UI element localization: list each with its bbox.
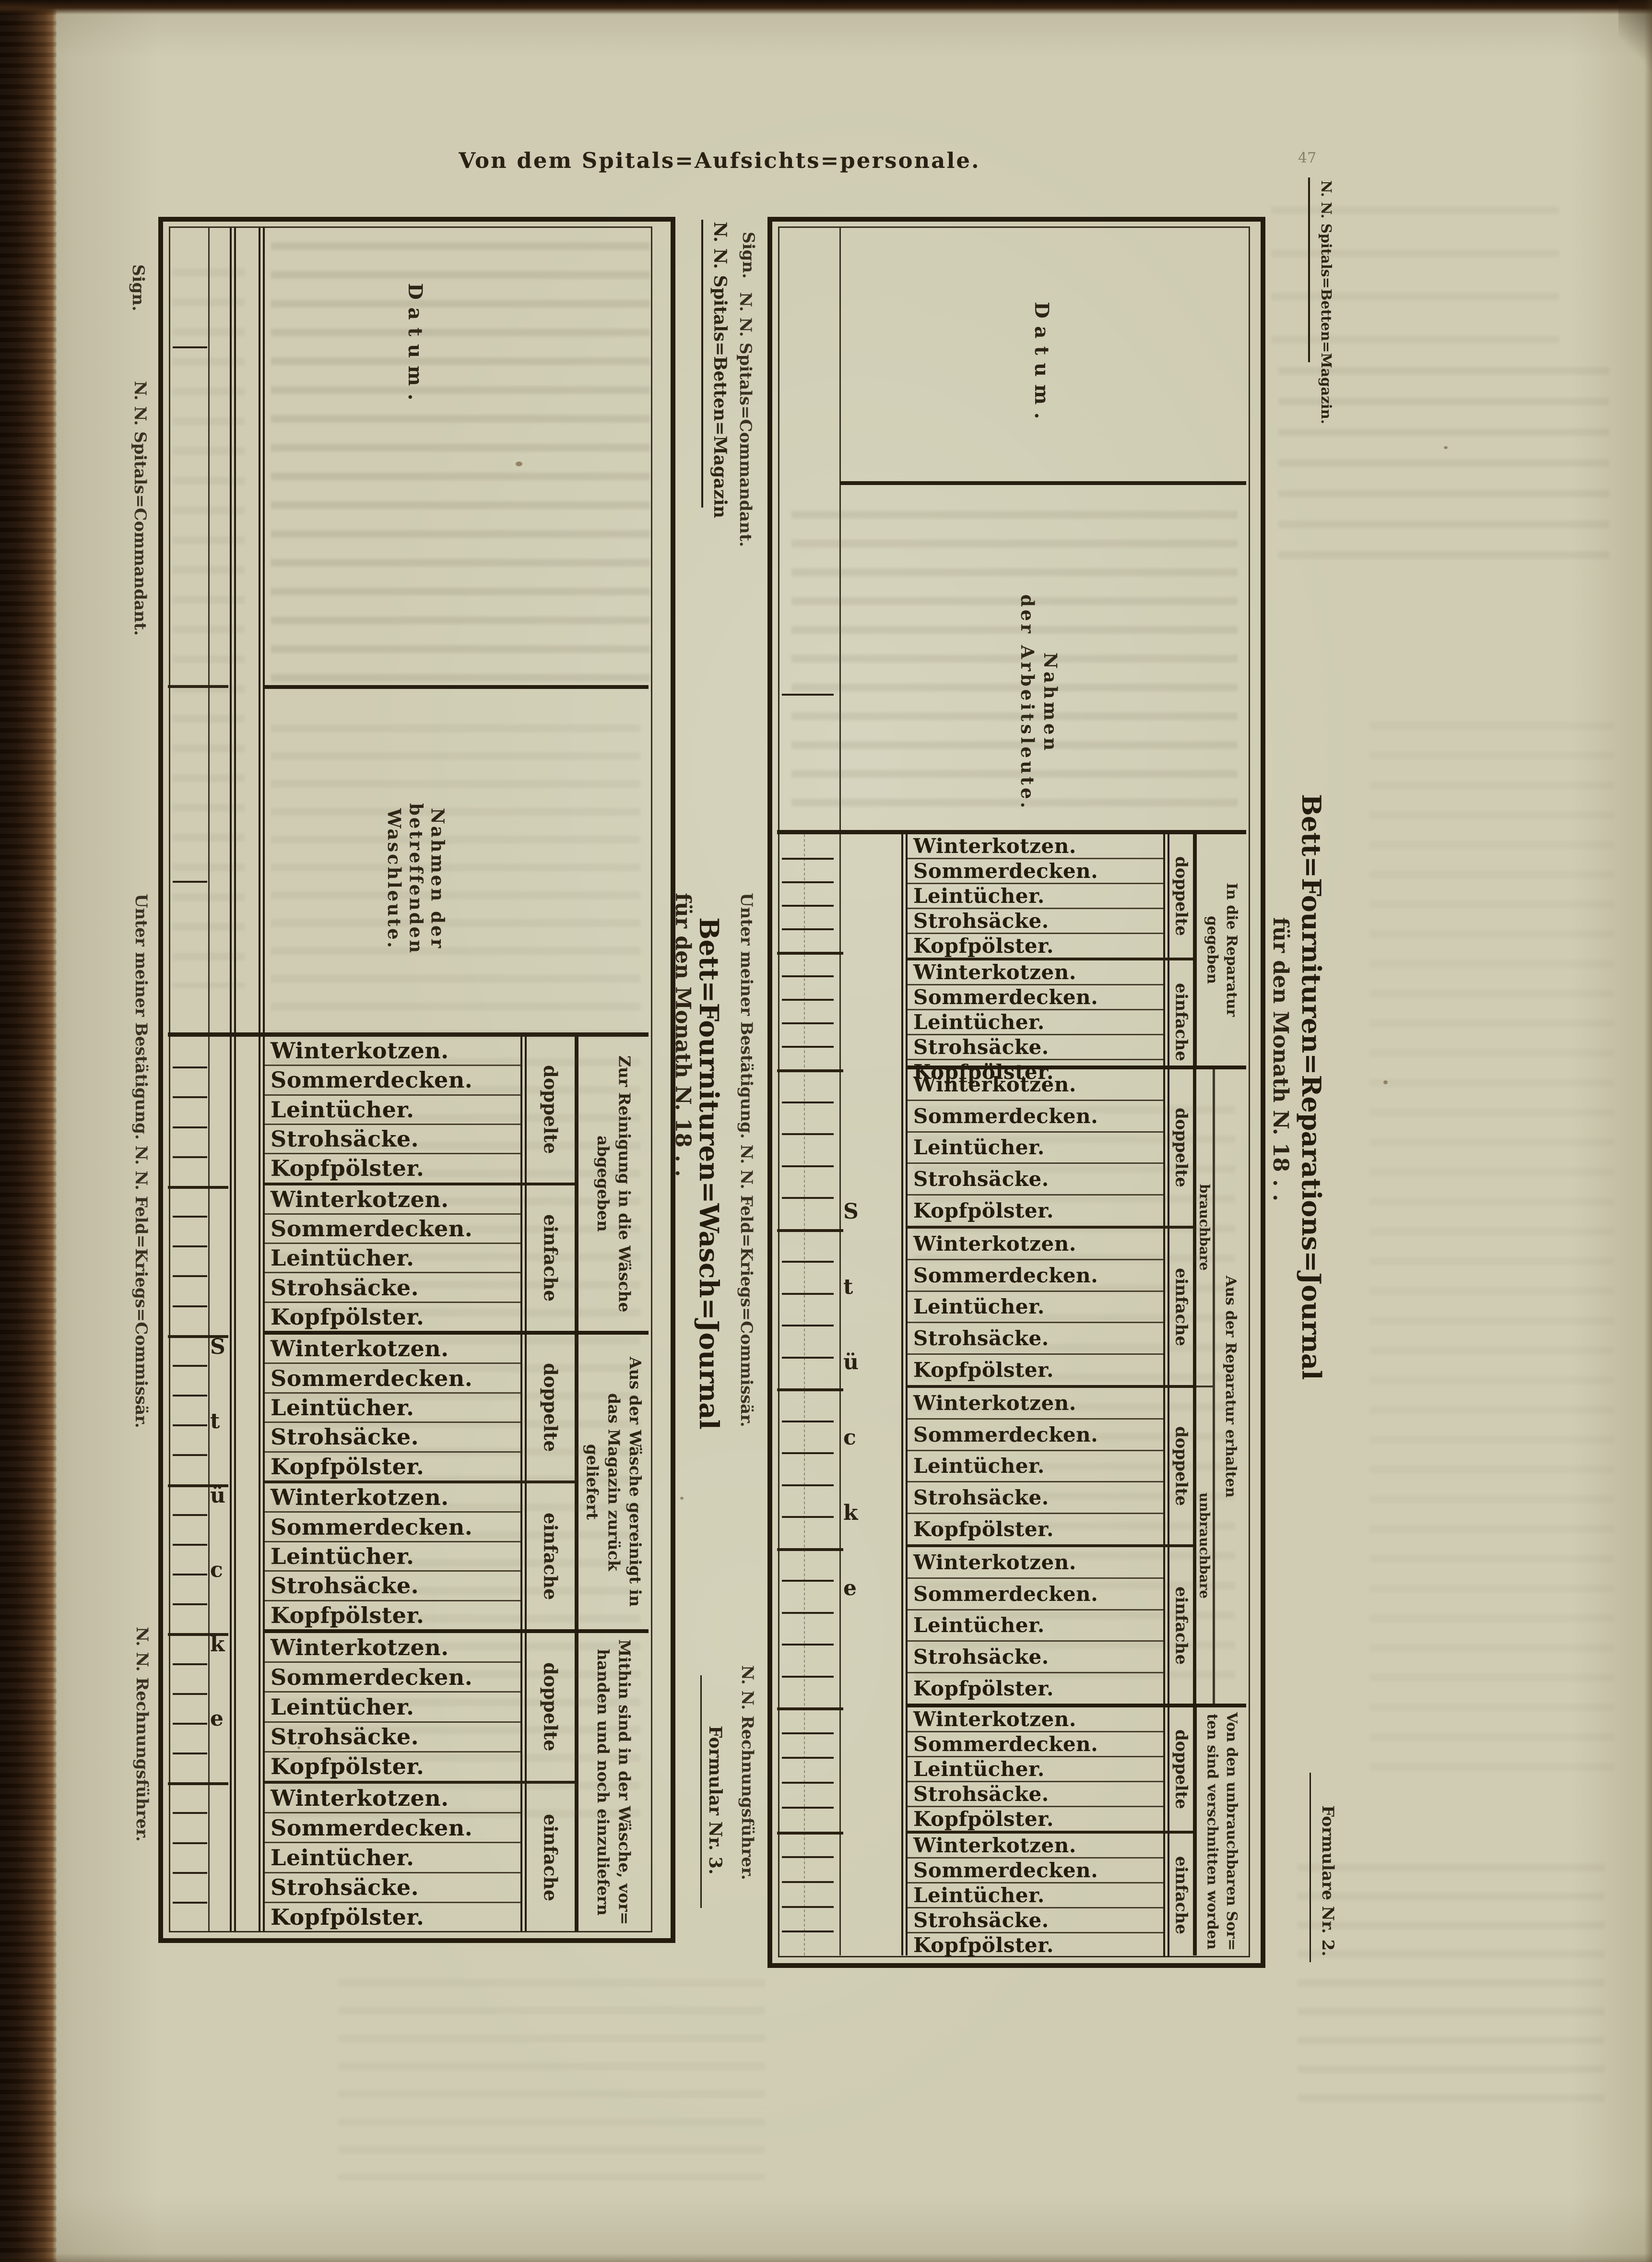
section-title-label: Aus der Reparatur erhalten: [1222, 1276, 1239, 1498]
item-row: Winterkotzen.: [908, 1229, 1163, 1260]
entry-line-dash: [782, 1325, 834, 1326]
group-type-cell: doppelte: [1163, 1069, 1193, 1226]
entry-line-dash: [782, 1676, 834, 1678]
item-label: Strohsäcke.: [271, 1275, 419, 1301]
item-row: Strohsäcke.: [908, 1164, 1163, 1196]
item-row: Leintücher.: [265, 1542, 520, 1572]
item-row: Kopfpölster.: [265, 1154, 520, 1182]
item-row: Strohsäcke.: [908, 909, 1163, 934]
item-label: Strohsäcke.: [913, 1326, 1049, 1350]
entry-line-dash: [777, 1069, 843, 1072]
group-type-label: einfache: [1172, 983, 1191, 1061]
entry-line-dash: [782, 1856, 834, 1858]
repair-journal-title: Bett=Fournituren=Reparations=Journal: [1296, 679, 1327, 1495]
item-label: Leintücher.: [913, 1757, 1045, 1781]
entry-line-dash: [168, 1782, 228, 1785]
item-label: Strohsäcke.: [913, 1782, 1049, 1806]
entry-line-dash: [777, 1832, 843, 1835]
item-label: Winterkotzen.: [271, 1785, 449, 1811]
entry-line-dash: [782, 1421, 834, 1422]
item-row: Kopfpölster.: [908, 1933, 1163, 1957]
entry-line-dash: [777, 1229, 843, 1232]
item-label: Leintücher.: [913, 1136, 1045, 1159]
entry-line-dash: [782, 1516, 834, 1518]
section-title-cell: Aus der Reparatur erhalten: [1213, 1069, 1246, 1704]
entry-line-dash: [173, 1753, 207, 1754]
repair-journal-section-0: Winterkotzen.Sommerdecken.Leintücher.Str…: [908, 834, 1246, 1069]
group-type-label: einfache: [1172, 1856, 1191, 1934]
item-label: Winterkotzen.: [913, 1707, 1076, 1731]
item-label: Kopfpölster.: [913, 934, 1054, 958]
group-type-label: doppelte: [1172, 856, 1191, 936]
paper-fleck-0: [516, 462, 522, 466]
wash-journal-names-header: Nahmen derbetreffendenWaschleute.: [383, 743, 448, 1015]
group-type-label: doppelte: [1172, 1729, 1191, 1809]
repair-journal-group-2-0-rows: Winterkotzen.Sommerdecken.Leintücher.Str…: [908, 1707, 1163, 1831]
section-title-line-2: geliefert: [581, 1357, 603, 1607]
item-label: Sommerdecken.: [271, 1514, 472, 1540]
section-title-line-1: abgegeben: [592, 1055, 614, 1312]
item-row: Sommerdecken.: [908, 1579, 1163, 1611]
item-label: Strohsäcke.: [913, 1645, 1049, 1669]
entry-line-dash: [782, 1930, 834, 1932]
item-row: Sommerdecken.: [908, 985, 1163, 1010]
item-label: Sommerdecken.: [913, 1859, 1098, 1882]
item-label: Strohsäcke.: [271, 1724, 419, 1750]
entry-line-dash: [173, 1842, 207, 1844]
group-type-label: doppelte: [1172, 1426, 1191, 1506]
item-label: Sommerdecken.: [913, 1423, 1098, 1446]
entry-line-dash: [173, 1723, 207, 1725]
entry-line-dash: [782, 1293, 834, 1295]
paper-fleck-3: [297, 1746, 300, 1749]
repair-journal-form-number: Formulare Nr. 2.: [1318, 1788, 1337, 1973]
repair-journal-group-2-1-rows: Winterkotzen.Sommerdecken.Leintücher.Str…: [908, 1834, 1163, 1957]
bleedthrough-patch-7: [338, 1979, 765, 2180]
wash-journal-group-2-1-rows: Winterkotzen.Sommerdecken.Leintücher.Str…: [265, 1784, 520, 1931]
section-title-line-1: handen und noch einzuliefern: [592, 1639, 614, 1925]
item-label: Winterkotzen.: [913, 834, 1076, 858]
stueck-letter-4: k: [843, 1501, 858, 1525]
stueck-letter-1: t: [843, 1275, 853, 1299]
item-label: Kopfpölster.: [271, 1155, 424, 1181]
item-row: Winterkotzen.: [908, 1707, 1163, 1732]
item-label: Kopfpölster.: [271, 1602, 424, 1628]
entry-line-dash: [173, 1305, 207, 1307]
wash-journal-names-line-0: Nahmen der: [426, 743, 448, 1015]
item-label: Winterkotzen.: [271, 1634, 449, 1660]
entry-line-dash: [173, 1365, 207, 1367]
entry-line-dash: [782, 1807, 834, 1809]
wash-journal-section-1-header: Aus der Wäsche gereinigt indas Magazin z…: [575, 1335, 649, 1629]
wash-journal-group-2-0: Winterkotzen.Sommerdecken.Leintücher.Str…: [265, 1633, 575, 1784]
wash-journal-section-1: Winterkotzen.Sommerdecken.Leintücher.Str…: [265, 1335, 649, 1633]
entry-line-dash: [782, 1261, 834, 1263]
entry-line-dash: [173, 1872, 207, 1874]
entry-line-dash: [173, 1693, 207, 1695]
group-type-label: einfache: [1172, 1268, 1191, 1346]
item-label: Sommerdecken.: [271, 1216, 472, 1242]
item-row: Winterkotzen.: [908, 834, 1163, 859]
item-row: Sommerdecken.: [265, 1663, 520, 1693]
item-row: Strohsäcke.: [908, 1323, 1163, 1355]
entry-line-dash: [777, 952, 843, 955]
item-label: Sommerdecken.: [913, 859, 1098, 883]
repair-journal-group-1-1: Winterkotzen.Sommerdecken.Leintücher.Str…: [908, 1229, 1193, 1388]
item-label: Kopfpölster.: [913, 1517, 1054, 1541]
item-label: Winterkotzen.: [913, 1232, 1076, 1255]
item-row: Winterkotzen.: [265, 1633, 520, 1663]
item-label: Strohsäcke.: [913, 1167, 1049, 1191]
entry-line-dash: [777, 1707, 843, 1710]
group-type-cell: einfache: [1163, 1547, 1193, 1704]
item-label: Strohsäcke.: [271, 1424, 419, 1450]
wash-journal-section-0: Winterkotzen.Sommerdecken.Leintücher.Str…: [265, 1037, 649, 1335]
item-row: Kopfpölster.: [908, 1673, 1163, 1704]
wash-journal-band-divider-0: [265, 685, 649, 689]
item-label: Kopfpölster.: [913, 1933, 1054, 1957]
entry-line-dash: [173, 1574, 207, 1575]
bleedthrough-patch-9: [1271, 206, 1559, 350]
item-label: Kopfpölster.: [271, 1904, 424, 1930]
item-label: Sommerdecken.: [271, 1815, 472, 1841]
group-type-label: einfache: [540, 1513, 562, 1600]
item-label: Kopfpölster.: [913, 1199, 1054, 1222]
stueck-letter-5: e: [843, 1576, 857, 1600]
wash-journal-group-1-0: Winterkotzen.Sommerdecken.Leintücher.Str…: [265, 1335, 575, 1483]
item-row: Leintücher.: [265, 1693, 520, 1722]
item-row: Winterkotzen.: [265, 1784, 520, 1813]
entry-line-dash: [782, 1357, 834, 1359]
section-title-line-0: Aus der Wäsche gereinigt in: [624, 1357, 646, 1607]
entry-line-dash: [173, 1424, 207, 1426]
page-bottom-edge: [0, 2253, 1652, 2262]
entry-line-dash: [173, 1454, 207, 1456]
item-row: Leintücher.: [908, 1757, 1163, 1782]
bleedthrough-patch-8: [1369, 722, 1614, 1777]
entry-line-dash: [782, 1165, 834, 1167]
entry-line-dash: [782, 1484, 834, 1486]
section-title-line-1: gegeben: [1202, 883, 1222, 1017]
item-label: Leintücher.: [913, 1883, 1045, 1907]
entry-line-dash: [782, 1732, 834, 1734]
wash-journal-group-2-0-rows: Winterkotzen.Sommerdecken.Leintücher.Str…: [265, 1633, 520, 1781]
entry-line-dash: [782, 1612, 834, 1614]
repair-journal-signature-sign-label: Sign.: [739, 232, 758, 277]
item-label: Strohsäcke.: [271, 1874, 419, 1900]
item-row: Strohsäcke.: [908, 1782, 1163, 1807]
item-label: Leintücher.: [913, 1454, 1045, 1478]
group-type-cell: doppelte: [520, 1633, 575, 1781]
entry-line-dash: [173, 1156, 207, 1158]
wash-journal-section-2-header: Mithin sind in der Wäsche, vor=handen un…: [575, 1633, 649, 1931]
repair-journal-group-0-1-rows: Winterkotzen.Sommerdecken.Leintücher.Str…: [908, 960, 1163, 1084]
repair-journal-signature-commandant: N. N. Spitals=Commandant.: [736, 276, 755, 564]
repair-journal-group-1-0-rows: Winterkotzen.Sommerdecken.Leintücher.Str…: [908, 1069, 1163, 1226]
item-row: Sommerdecken.: [265, 1215, 520, 1244]
item-row: Kopfpölster.: [908, 1807, 1163, 1831]
group-type-label: doppelte: [540, 1065, 562, 1154]
repair-journal-group-2-0: Winterkotzen.Sommerdecken.Leintücher.Str…: [908, 1707, 1193, 1834]
group-type-cell: einfache: [520, 1784, 575, 1931]
subsection-label: unbrauchbare: [1197, 1492, 1213, 1599]
entry-line-dash: [168, 1186, 228, 1189]
entry-line-dash: [173, 1812, 207, 1814]
item-label: Winterkotzen.: [271, 1186, 449, 1212]
group-type-cell: doppelte: [1163, 834, 1193, 958]
book-page: Von dem Spitals=Aufsichts=personale. 47 …: [0, 0, 1652, 2262]
item-row: Leintücher.: [908, 1010, 1163, 1035]
section-title: Aus der Wäsche gereinigt indas Magazin z…: [581, 1357, 646, 1607]
item-row: Winterkotzen.: [908, 1547, 1163, 1579]
repair-journal-group-0-0-rows: Winterkotzen.Sommerdecken.Leintücher.Str…: [908, 834, 1163, 958]
repair-journal-section-1: Winterkotzen.Sommerdecken.Leintücher.Str…: [908, 1069, 1246, 1707]
item-row: Winterkotzen.: [265, 1483, 520, 1513]
repair-journal-group-0-1: Winterkotzen.Sommerdecken.Leintücher.Str…: [908, 960, 1193, 1084]
page-top-edge: [0, 0, 1652, 14]
wash-journal-datum-header: Datum.: [404, 283, 426, 359]
entry-line-dash: [173, 346, 207, 348]
wash-journal-group-0-0: Winterkotzen.Sommerdecken.Leintücher.Str…: [265, 1037, 575, 1185]
entry-line-dash: [173, 1395, 207, 1397]
stueck-letter-4: k: [210, 1632, 225, 1657]
item-label: Sommerdecken.: [271, 1664, 472, 1690]
entry-line-dash: [782, 1580, 834, 1582]
wash-journal-group-2-1: Winterkotzen.Sommerdecken.Leintücher.Str…: [265, 1784, 575, 1931]
item-row: Leintücher.: [265, 1096, 520, 1125]
repair-journal-section-1-subheaders: brauchbareunbrauchbare: [1196, 1069, 1213, 1704]
wash-journal-signature-commandant: N. N. Spitals=Commandant.: [130, 367, 150, 650]
group-type-cell: doppelte: [520, 1037, 575, 1183]
entry-line-dash: [782, 1906, 834, 1908]
item-row: Sommerdecken.: [908, 1260, 1163, 1292]
item-row: Sommerdecken.: [908, 859, 1163, 884]
entry-line-dash: [782, 975, 834, 977]
item-label: Leintücher.: [913, 1295, 1045, 1318]
wash-journal-letterhead: N. N. Spitals=Betten=Magazin: [710, 222, 730, 507]
item-label: Winterkotzen.: [913, 1551, 1076, 1574]
subsection-cell: brauchbare: [1196, 1069, 1213, 1387]
repair-journal-group-1-2: Winterkotzen.Sommerdecken.Leintücher.Str…: [908, 1388, 1193, 1547]
wash-journal-signature-sign-label: Sign.: [129, 259, 148, 317]
stueck-letter-1: t: [210, 1409, 220, 1433]
item-row: Leintücher.: [908, 1883, 1163, 1908]
repair-journal-group-1-3: Winterkotzen.Sommerdecken.Leintücher.Str…: [908, 1547, 1193, 1704]
group-type-label: einfache: [540, 1214, 562, 1302]
item-row: Kopfpölster.: [908, 1355, 1163, 1385]
wash-journal-subtitle: für den Monath N. 18 . .: [671, 828, 695, 1243]
entry-line-dash: [782, 694, 834, 696]
item-row: Sommerdecken.: [265, 1813, 520, 1843]
item-row: Strohsäcke.: [265, 1572, 520, 1601]
item-label: Leintücher.: [271, 1395, 414, 1421]
section-title: In die Reparaturgegeben: [1202, 883, 1241, 1017]
item-label: Strohsäcke.: [271, 1573, 419, 1599]
repair-journal-formnumber-rule: [1310, 1773, 1311, 1962]
group-type-cell: einfache: [520, 1185, 575, 1331]
item-row: Strohsäcke.: [265, 1873, 520, 1903]
entry-line-dash: [173, 1245, 207, 1247]
item-label: Sommerdecken.: [913, 1732, 1098, 1756]
repair-journal-datum-header: Datum.: [1030, 300, 1053, 428]
wash-journal-letterhead-rule: [701, 220, 703, 508]
item-label: Kopfpölster.: [913, 1677, 1054, 1700]
stueck-letter-0: S: [210, 1335, 225, 1359]
repair-journal-section-2-header: Von den unbrauchbaren Sor=ten sind versc…: [1193, 1707, 1246, 1955]
item-row: Sommerdecken.: [908, 1420, 1163, 1451]
item-row: Leintücher.: [265, 1843, 520, 1873]
section-title-line-0: Zur Reinigung in die Wäsche: [614, 1055, 635, 1312]
item-row: Kopfpölster.: [265, 1601, 520, 1629]
wash-journal-column-divider-0: [208, 228, 210, 1931]
wash-journal-section-2-groups: Winterkotzen.Sommerdecken.Leintücher.Str…: [265, 1633, 575, 1931]
repair-journal-band-divider-0: [840, 481, 1246, 485]
item-row: Kopfpölster.: [265, 1453, 520, 1480]
section-title: Zur Reinigung in die Wäscheabgegeben: [592, 1055, 635, 1312]
item-label: Kopfpölster.: [913, 1807, 1054, 1831]
item-row: Sommerdecken.: [908, 1732, 1163, 1757]
item-label: Leintücher.: [271, 1245, 414, 1271]
repair-journal-band-divider-1: [777, 830, 1246, 834]
wash-journal-signature-commissar: Unter meiner Bestätigung. N. N. Feld=Kri…: [131, 736, 151, 1586]
repair-journal-subtitle: für den Monath N. 18 . .: [1268, 839, 1293, 1280]
item-row: Leintücher.: [908, 1133, 1163, 1164]
item-row: Winterkotzen.: [265, 1185, 520, 1215]
repair-journal-letterhead: N. N. Spitals=Betten=Magazin.: [1318, 180, 1334, 361]
entry-line-dash: [782, 1046, 834, 1048]
item-label: Sommerdecken.: [913, 1264, 1098, 1287]
item-row: Winterkotzen.: [265, 1037, 520, 1066]
repair-journal-group-2-1: Winterkotzen.Sommerdecken.Leintücher.Str…: [908, 1834, 1193, 1957]
entry-line-dash: [782, 905, 834, 907]
entry-line-dash: [782, 1197, 834, 1199]
repair-journal-section-0-header: In die Reparaturgegeben: [1193, 834, 1246, 1066]
entry-line-dash: [173, 1902, 207, 1904]
wash-journal-title: Bett=Fournituren=Wasch=Journal: [694, 810, 725, 1537]
repair-journal-section-0-groups: Winterkotzen.Sommerdecken.Leintücher.Str…: [908, 834, 1193, 1066]
group-type-label: einfache: [1172, 1587, 1191, 1665]
group-type-cell: einfache: [1163, 1229, 1193, 1385]
item-row: Leintücher.: [265, 1244, 520, 1273]
wash-journal-group-0-1-rows: Winterkotzen.Sommerdecken.Leintücher.Str…: [265, 1185, 520, 1331]
item-label: Strohsäcke.: [913, 1908, 1049, 1932]
repair-journal-column-divider-1: [839, 228, 841, 1955]
wash-journal-column-divider-1: [230, 228, 236, 1931]
repair-journal-letterhead-rule: [1308, 178, 1310, 362]
item-row: Sommerdecken.: [908, 1859, 1163, 1883]
section-title-line-0: Von den unbrauchbaren Sor=: [1222, 1712, 1241, 1951]
group-type-label: einfache: [540, 1814, 562, 1901]
item-row: Strohsäcke.: [908, 1908, 1163, 1933]
item-label: Strohsäcke.: [913, 1035, 1049, 1059]
repair-journal-group-1-1-rows: Winterkotzen.Sommerdecken.Leintücher.Str…: [908, 1229, 1163, 1385]
item-row: Winterkotzen.: [908, 1388, 1163, 1420]
wash-journal-group-1-1: Winterkotzen.Sommerdecken.Leintücher.Str…: [265, 1483, 575, 1629]
entry-line-dash: [173, 1275, 207, 1277]
item-label: Leintücher.: [271, 1694, 414, 1720]
item-row: Kopfpölster.: [908, 1514, 1163, 1544]
subsection-label: brauchbare: [1197, 1184, 1213, 1271]
item-label: Sommerdecken.: [271, 1365, 472, 1391]
repair-journal-section-1-groups: Winterkotzen.Sommerdecken.Leintücher.Str…: [908, 1069, 1193, 1704]
item-row: Strohsäcke.: [265, 1273, 520, 1303]
entry-line-dash: [173, 881, 207, 883]
item-row: Strohsäcke.: [908, 1035, 1163, 1060]
item-row: Leintücher.: [908, 884, 1163, 909]
book-binding: [0, 0, 57, 2262]
group-type-cell: einfache: [1163, 960, 1193, 1084]
entry-line-dash: [782, 1757, 834, 1759]
item-row: Leintücher.: [265, 1394, 520, 1423]
entry-line-dash: [782, 1782, 834, 1784]
entry-line-dash: [782, 858, 834, 860]
repair-journal-signature-accountant: N. N. Rechnungsführer.: [738, 1655, 757, 1890]
item-row: Kopfpölster.: [265, 1753, 520, 1781]
entry-line-dash: [173, 1066, 207, 1068]
paper-fleck-2: [680, 1497, 684, 1500]
repair-journal-group-0-0: Winterkotzen.Sommerdecken.Leintücher.Str…: [908, 834, 1193, 960]
bleedthrough-patch-6: [1298, 1864, 1605, 2104]
wash-journal-names-line-2: Waschleute.: [383, 743, 405, 1015]
wash-journal-signature-accountant: N. N. Rechnungsführer.: [132, 1622, 152, 1847]
item-label: Sommerdecken.: [913, 985, 1098, 1009]
entry-line-dash: [173, 1126, 207, 1128]
stueck-letter-5: e: [210, 1706, 224, 1731]
item-row: Strohsäcke.: [265, 1723, 520, 1753]
stueck-letter-2: ü: [210, 1483, 225, 1508]
repair-journal-group-1-0: Winterkotzen.Sommerdecken.Leintücher.Str…: [908, 1069, 1193, 1229]
item-row: Winterkotzen.: [908, 1069, 1163, 1101]
item-row: Strohsäcke.: [265, 1125, 520, 1154]
wash-journal-form-number: Formular Nr. 3.: [705, 1703, 725, 1897]
entry-line-dash: [173, 1216, 207, 1218]
group-type-cell: doppelte: [1163, 1707, 1193, 1831]
wash-journal-section-1-groups: Winterkotzen.Sommerdecken.Leintücher.Str…: [265, 1335, 575, 1629]
item-label: Winterkotzen.: [913, 1391, 1076, 1415]
item-row: Sommerdecken.: [265, 1066, 520, 1095]
entry-line-dash: [173, 1096, 207, 1098]
item-label: Sommerdecken.: [913, 1104, 1098, 1128]
repair-journal-column-divider-2: [901, 834, 908, 1955]
wash-journal-items-table: Winterkotzen.Sommerdecken.Leintücher.Str…: [265, 1037, 649, 1931]
item-row: Sommerdecken.: [908, 1101, 1163, 1133]
entry-line-dash: [777, 1388, 843, 1391]
item-row: Leintücher.: [908, 1451, 1163, 1483]
subsection-cell: unbrauchbare: [1196, 1387, 1213, 1704]
item-label: Winterkotzen.: [913, 1073, 1076, 1096]
entry-line-dash: [782, 1644, 834, 1646]
group-type-label: doppelte: [540, 1662, 562, 1751]
repair-journal-signature-commissar: Unter meiner Bestätigung. N. N. Feld=Kri…: [737, 734, 756, 1586]
entry-line-dash: [782, 928, 834, 930]
entry-line-dash: [173, 1663, 207, 1665]
repair-journal-names-line-1: der Arbeitsleute.: [1016, 568, 1039, 837]
section-title: Mithin sind in der Wäsche, vor=handen un…: [592, 1639, 635, 1925]
item-row: Kopfpölster.: [908, 1196, 1163, 1226]
item-label: Winterkotzen.: [271, 1336, 449, 1362]
wash-journal-section-2: Winterkotzen.Sommerdecken.Leintücher.Str…: [265, 1633, 649, 1931]
repair-journal-section-1-header: brauchbareunbrauchbareAus der Reparatur …: [1193, 1069, 1246, 1704]
entry-line-dash: [173, 1603, 207, 1605]
item-label: Leintücher.: [271, 1097, 414, 1123]
item-label: Leintücher.: [913, 1010, 1045, 1034]
section-title: Von den unbrauchbaren Sor=ten sind versc…: [1202, 1712, 1241, 1951]
stueck-letter-3: c: [843, 1425, 856, 1450]
section-title-line-1: ten sind verschnitten worden: [1202, 1712, 1222, 1951]
item-label: Strohsäcke.: [913, 1486, 1049, 1509]
paper-fleck-4: [1444, 446, 1448, 449]
page-right-edge: [1644, 0, 1652, 2262]
